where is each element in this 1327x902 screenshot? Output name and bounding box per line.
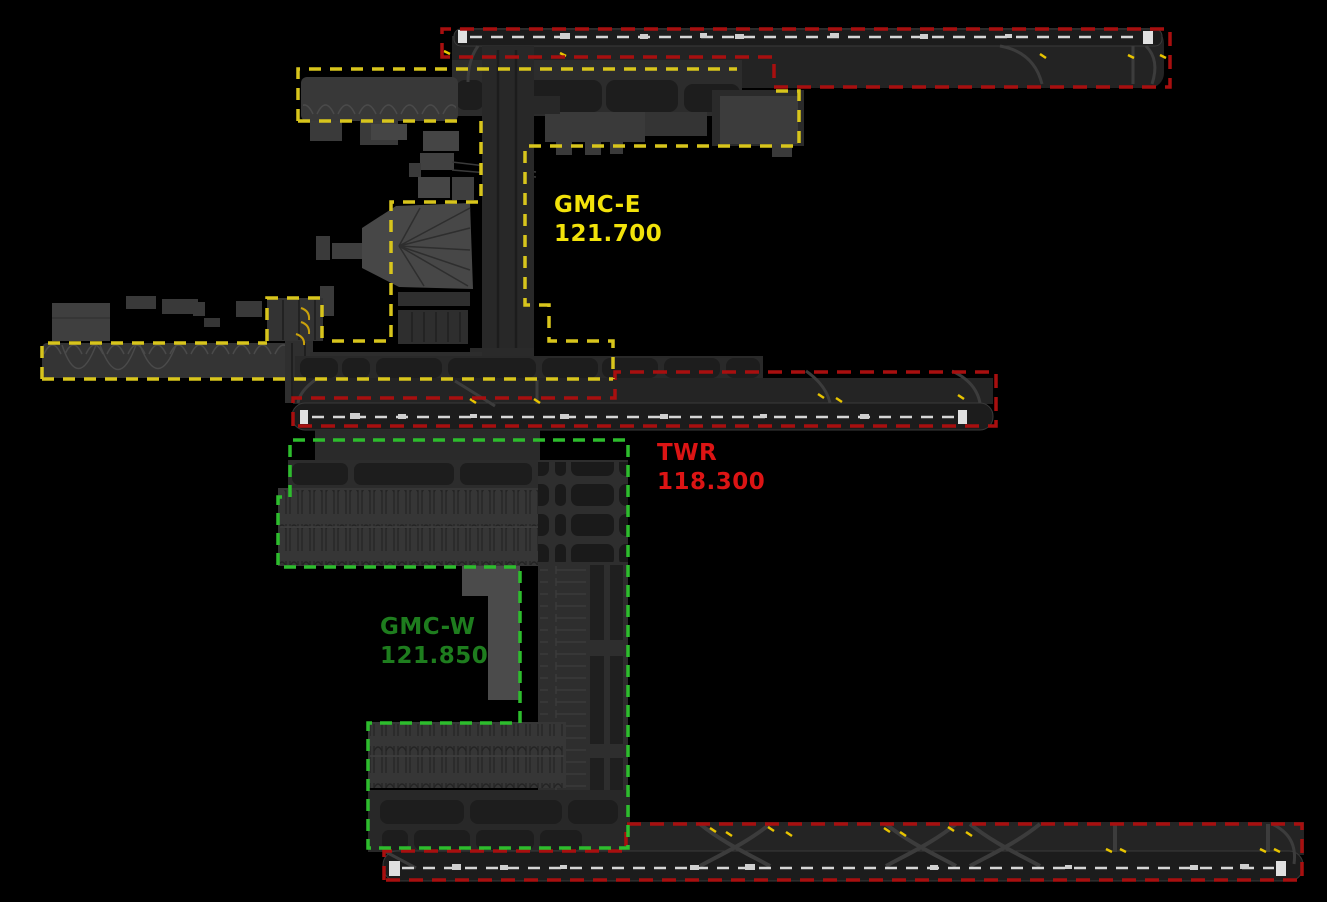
airport-ground-map: GMC-E 121.700 TWR 118.300 GMC-W 121.850 [0,0,1327,902]
satellite-pier-terminal [316,203,473,344]
sector-frequency: 121.700 [554,220,662,249]
sector-label-twr: TWR 118.300 [657,439,765,497]
sector-name: GMC-W [380,613,488,642]
sector-name: GMC-E [554,191,662,220]
midfield-runway-complex [292,356,993,430]
sector-name: TWR [657,439,765,468]
sector-frequency: 121.850 [380,642,488,671]
sector-label-gmc-e: GMC-E 121.700 [554,191,662,249]
sector-frequency: 118.300 [657,468,765,497]
remote-stand-apron [267,298,323,345]
sector-label-gmc-w: GMC-W 121.850 [380,613,488,671]
central-taxiway-spine [470,46,560,382]
